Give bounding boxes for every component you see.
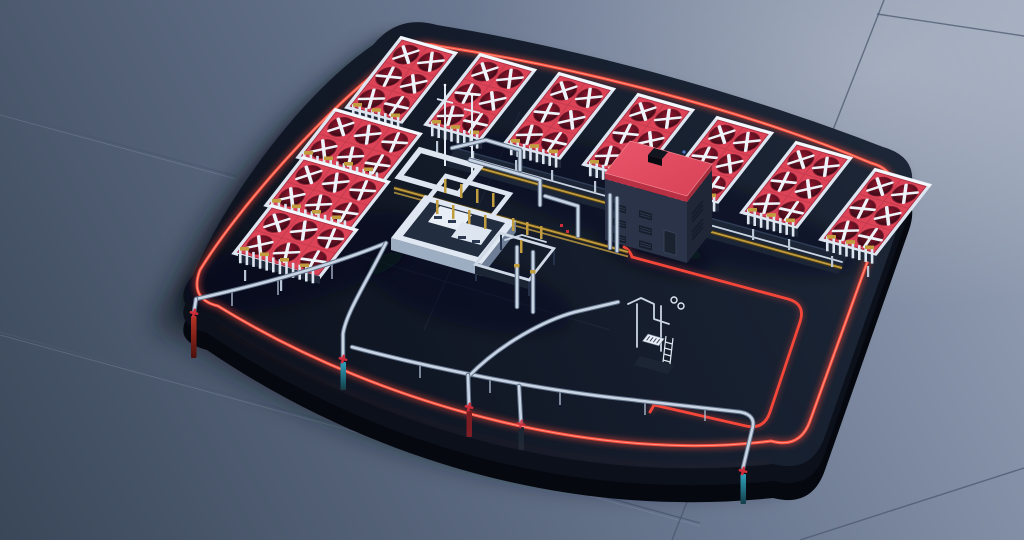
- plant-render: [0, 0, 1024, 540]
- building-door: [664, 230, 676, 255]
- roof-beacon: [682, 150, 685, 153]
- render-stage: [0, 0, 1024, 540]
